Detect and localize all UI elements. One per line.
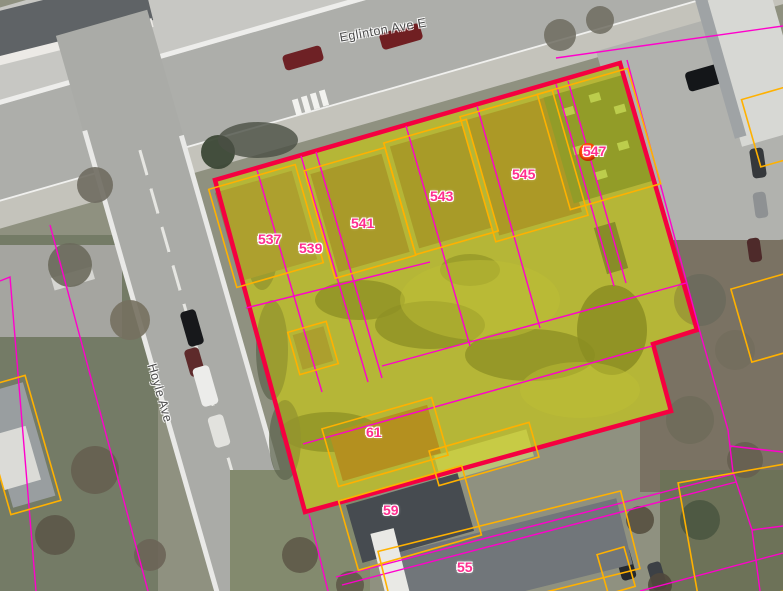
- parcel-label-text: 55: [457, 559, 473, 575]
- parcel-label-text: 537: [258, 231, 281, 247]
- parcel-label-text: 539: [299, 240, 322, 256]
- map-viewport[interactable]: 537 539 541 543 545 547 61 59 55 Eglinto…: [0, 0, 783, 591]
- parcel-label-text: 59: [383, 502, 399, 518]
- parcel-label-text: 543: [430, 188, 453, 204]
- parcel-label-text: 541: [351, 215, 374, 231]
- parcel-label-text: 545: [512, 166, 535, 182]
- parcel-label-text: 547: [583, 143, 606, 159]
- parcel-label-text: 61: [366, 424, 382, 440]
